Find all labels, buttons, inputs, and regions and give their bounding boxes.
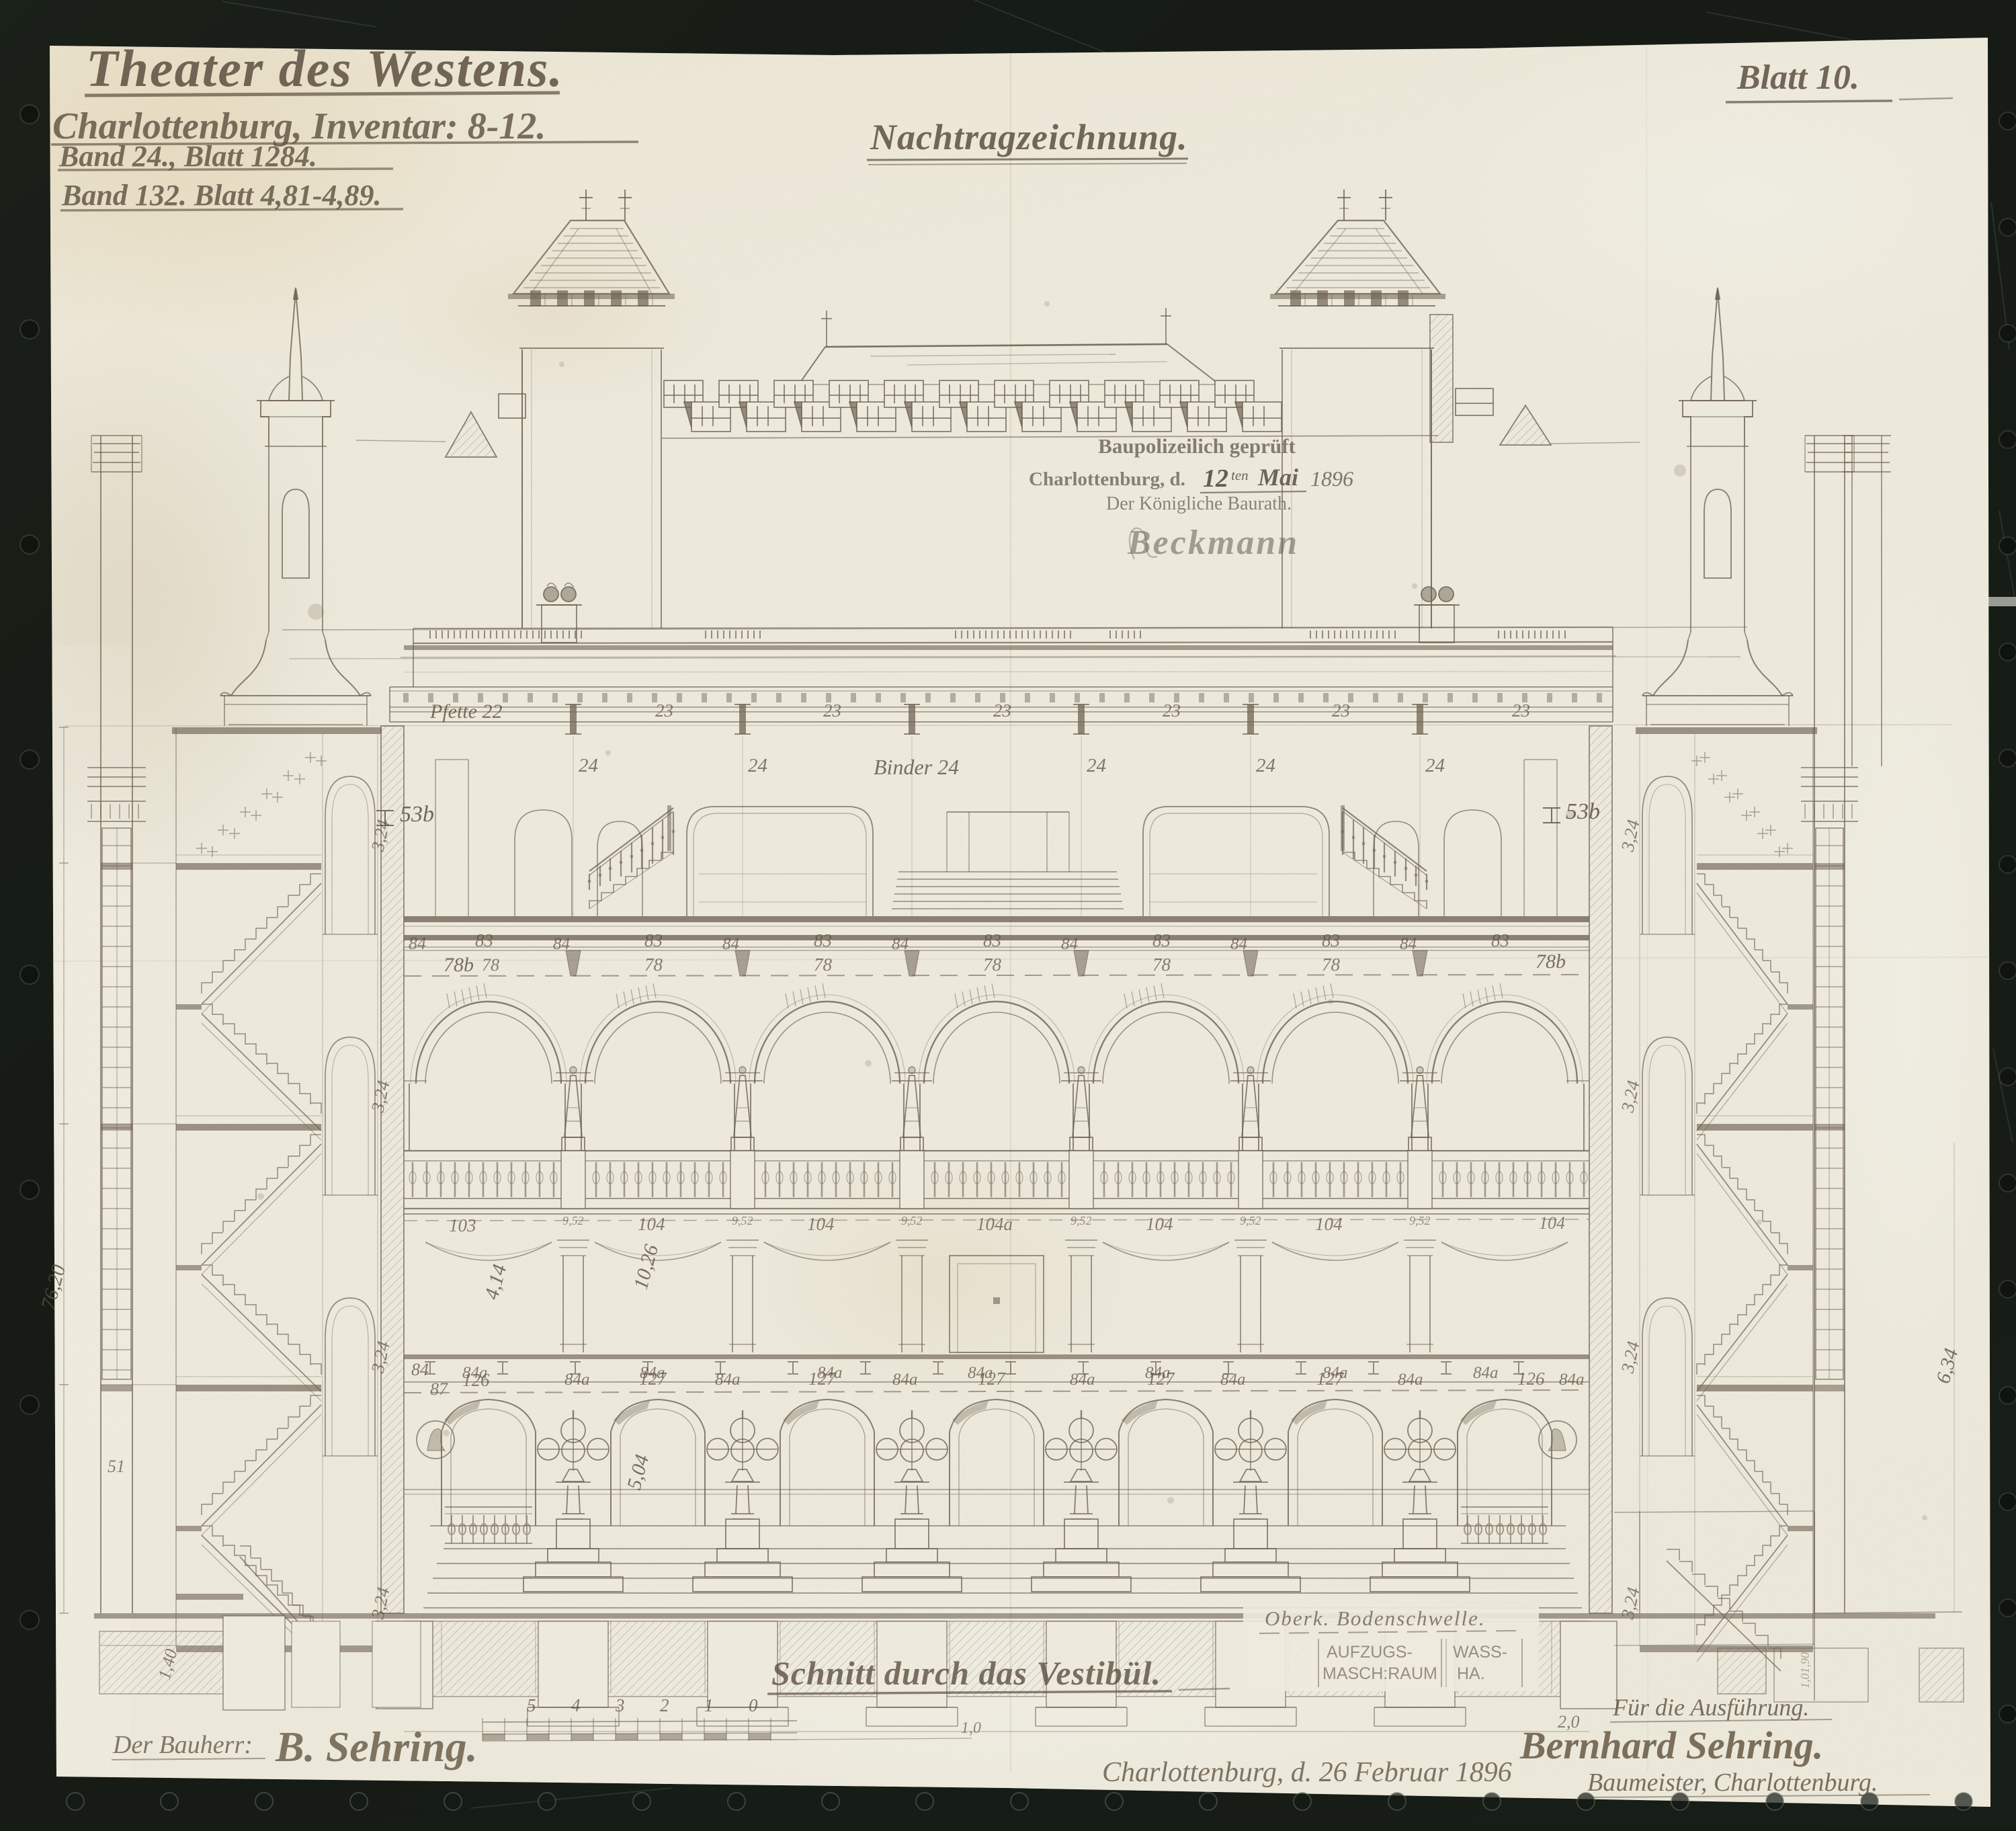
svg-text:Oberk. Bodenschwelle.: Oberk. Bodenschwelle. <box>1265 1606 1486 1630</box>
svg-text:51: 51 <box>108 1457 125 1476</box>
svg-text:84a: 84a <box>1473 1364 1499 1382</box>
svg-text:Für die Ausführung.: Für die Ausführung. <box>1612 1694 1809 1721</box>
svg-text:1,0: 1,0 <box>961 1719 981 1737</box>
svg-text:84: 84 <box>409 934 426 953</box>
svg-text:84: 84 <box>1061 935 1078 953</box>
svg-text:Der Bauherr:: Der Bauherr: <box>112 1731 253 1759</box>
svg-text:ten: ten <box>1231 467 1249 483</box>
svg-text:84: 84 <box>722 935 739 953</box>
svg-text:MASCH:RAUM: MASCH:RAUM <box>1322 1664 1437 1683</box>
svg-text:12: 12 <box>1203 464 1228 493</box>
svg-text:83: 83 <box>1152 930 1171 950</box>
svg-text:4: 4 <box>571 1695 581 1715</box>
svg-text:78b: 78b <box>444 954 474 976</box>
svg-text:24: 24 <box>748 755 767 776</box>
svg-text:126: 126 <box>462 1370 490 1390</box>
svg-text:24: 24 <box>1256 755 1275 776</box>
svg-text:104: 104 <box>807 1214 835 1234</box>
svg-text:1896: 1896 <box>1310 466 1353 491</box>
svg-text:78: 78 <box>1152 954 1171 975</box>
svg-text:Baupolizeilich geprüft: Baupolizeilich geprüft <box>1098 434 1296 458</box>
svg-text:127: 127 <box>978 1369 1006 1389</box>
svg-text:AUFZUGS-: AUFZUGS- <box>1327 1643 1413 1662</box>
svg-text:84: 84 <box>892 935 909 953</box>
svg-text:Pfette 22: Pfette 22 <box>429 700 502 723</box>
svg-text:83: 83 <box>1491 930 1509 950</box>
svg-text:Bernhard Sehring.: Bernhard Sehring. <box>1519 1723 1823 1767</box>
svg-text:Charlottenburg, d.: Charlottenburg, d. <box>1029 469 1185 490</box>
svg-text:5: 5 <box>527 1695 536 1715</box>
svg-text:23: 23 <box>1332 700 1350 721</box>
svg-text:9,52: 9,52 <box>732 1214 753 1227</box>
svg-text:HA.: HA. <box>1457 1664 1485 1683</box>
svg-text:23: 23 <box>1512 700 1530 721</box>
svg-text:9,52: 9,52 <box>1070 1214 1092 1227</box>
svg-text:84a: 84a <box>1070 1371 1095 1389</box>
svg-text:9,52: 9,52 <box>901 1214 923 1227</box>
svg-text:1: 1 <box>704 1695 714 1715</box>
svg-text:Beckmann: Beckmann <box>1127 524 1299 562</box>
svg-text:Charlottenburg, d. 26 Februar: Charlottenburg, d. 26 Februar 1896 <box>1102 1757 1512 1788</box>
svg-text:WASS-: WASS- <box>1453 1643 1507 1662</box>
svg-text:127: 127 <box>1316 1369 1345 1389</box>
svg-text:78: 78 <box>482 955 499 975</box>
svg-text:78: 78 <box>983 954 1002 975</box>
svg-text:83: 83 <box>814 930 832 950</box>
svg-text:Mai: Mai <box>1257 464 1298 491</box>
svg-text:23: 23 <box>993 700 1011 721</box>
svg-text:104: 104 <box>1315 1214 1343 1234</box>
svg-text:78b: 78b <box>1536 950 1566 973</box>
svg-text:1,01,90: 1,01,90 <box>1798 1652 1812 1688</box>
svg-text:84a: 84a <box>1559 1371 1585 1389</box>
svg-text:84: 84 <box>1230 935 1247 953</box>
svg-text:84: 84 <box>1400 935 1417 953</box>
svg-text:84: 84 <box>411 1360 429 1379</box>
svg-text:84a: 84a <box>1398 1371 1423 1389</box>
svg-text:127: 127 <box>1147 1369 1175 1389</box>
svg-text:78: 78 <box>814 954 833 975</box>
svg-text:24: 24 <box>1425 755 1445 776</box>
svg-text:Binder 24: Binder 24 <box>874 755 959 779</box>
svg-text:126: 126 <box>1517 1369 1545 1389</box>
svg-text:127: 127 <box>639 1369 667 1389</box>
svg-text:Band 132. Blatt 4,81-4,89.: Band 132. Blatt 4,81-4,89. <box>61 179 382 212</box>
svg-text:84a: 84a <box>715 1371 741 1389</box>
svg-text:104: 104 <box>1146 1214 1173 1234</box>
svg-text:23: 23 <box>823 700 841 721</box>
svg-text:23: 23 <box>655 700 673 721</box>
svg-text:78: 78 <box>644 954 663 975</box>
svg-text:103: 103 <box>449 1215 476 1235</box>
svg-text:84a: 84a <box>1220 1371 1246 1389</box>
svg-text:Band 24., Blatt 1284.: Band 24., Blatt 1284. <box>58 140 317 173</box>
svg-text:Der Königliche Baurath.: Der Königliche Baurath. <box>1106 493 1292 514</box>
svg-text:9,52: 9,52 <box>1409 1214 1431 1227</box>
svg-text:83: 83 <box>475 930 493 950</box>
svg-text:104: 104 <box>638 1214 665 1234</box>
svg-text:24: 24 <box>1087 755 1106 776</box>
svg-text:0: 0 <box>749 1695 758 1715</box>
svg-text:9,52: 9,52 <box>1240 1214 1261 1227</box>
svg-text:84a: 84a <box>892 1371 918 1389</box>
svg-text:87: 87 <box>430 1379 448 1399</box>
svg-text:Theater des Westens.: Theater des Westens. <box>86 39 564 97</box>
svg-text:Blatt 10.: Blatt 10. <box>1736 58 1859 97</box>
svg-text:2: 2 <box>660 1695 669 1715</box>
svg-text:23: 23 <box>1163 700 1181 721</box>
svg-text:84a: 84a <box>564 1371 590 1389</box>
svg-text:84: 84 <box>553 935 570 953</box>
svg-text:3: 3 <box>615 1695 625 1715</box>
svg-text:53b: 53b <box>400 802 434 827</box>
svg-text:24: 24 <box>579 755 598 776</box>
svg-text:104: 104 <box>1539 1213 1565 1233</box>
svg-text:B. Sehring.: B. Sehring. <box>275 1723 478 1771</box>
svg-text:78: 78 <box>1322 954 1341 975</box>
svg-text:83: 83 <box>983 930 1001 950</box>
svg-text:127: 127 <box>808 1369 837 1389</box>
svg-text:Nachtragzeichnung.: Nachtragzeichnung. <box>870 117 1188 157</box>
svg-text:Schnitt durch das Vestibül.: Schnitt durch das Vestibül. <box>771 1654 1161 1692</box>
svg-text:9,52: 9,52 <box>562 1214 584 1227</box>
svg-text:Baumeister, Charlottenburg.: Baumeister, Charlottenburg. <box>1587 1768 1878 1797</box>
svg-text:83: 83 <box>644 930 663 950</box>
svg-text:83: 83 <box>1322 930 1340 950</box>
svg-text:104a: 104a <box>976 1214 1013 1234</box>
